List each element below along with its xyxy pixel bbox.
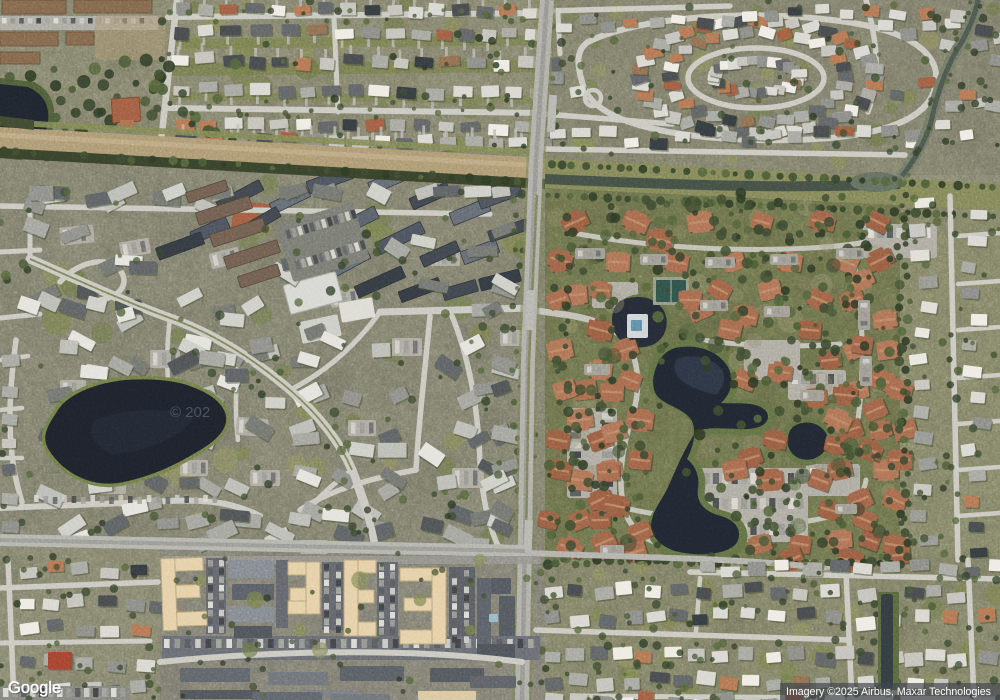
svg-text:Imagery ©2025 Airbus, Maxar Te: Imagery ©2025 Airbus, Maxar Technologies <box>786 686 991 698</box>
svg-text:Google: Google <box>8 679 61 697</box>
